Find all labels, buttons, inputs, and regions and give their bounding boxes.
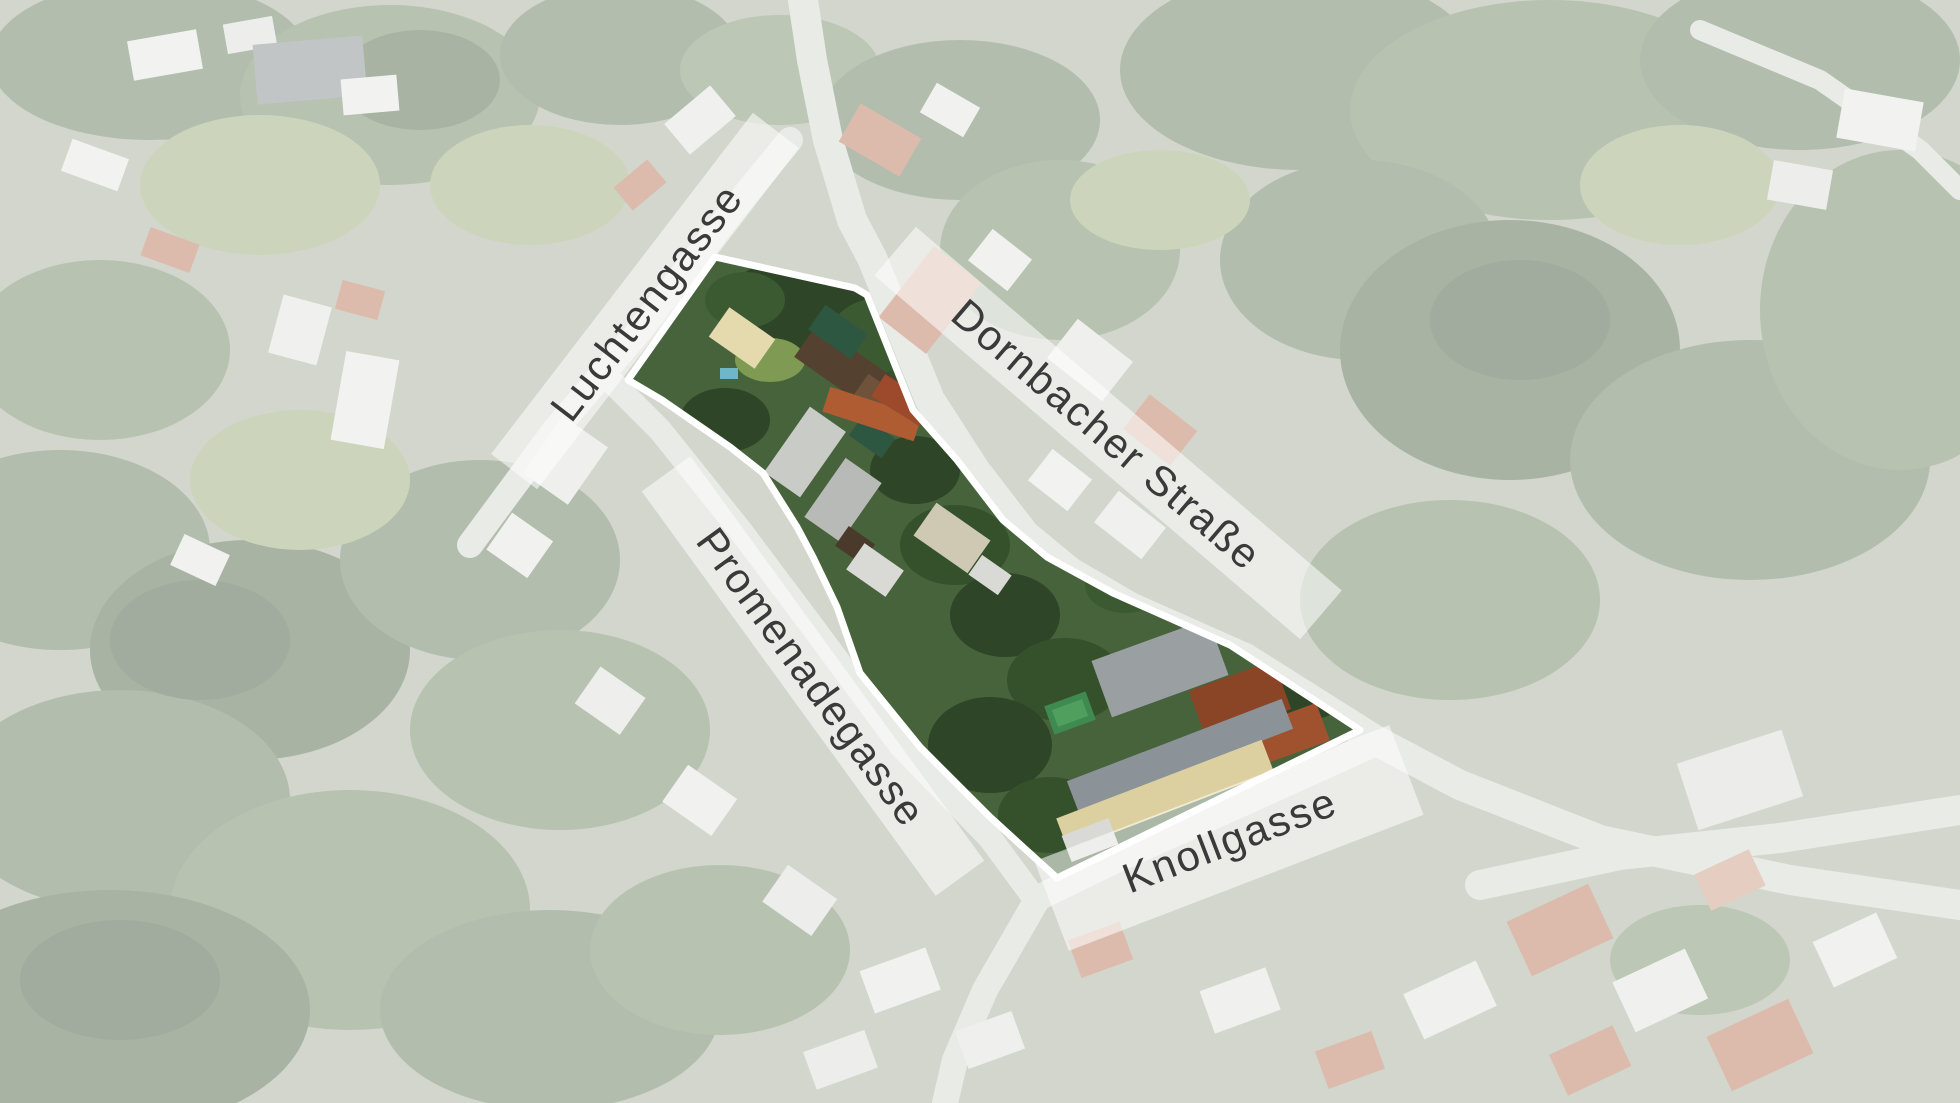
aerial-map: Luchtengasse Dornbacher Straße Promenade…	[0, 0, 1960, 1103]
